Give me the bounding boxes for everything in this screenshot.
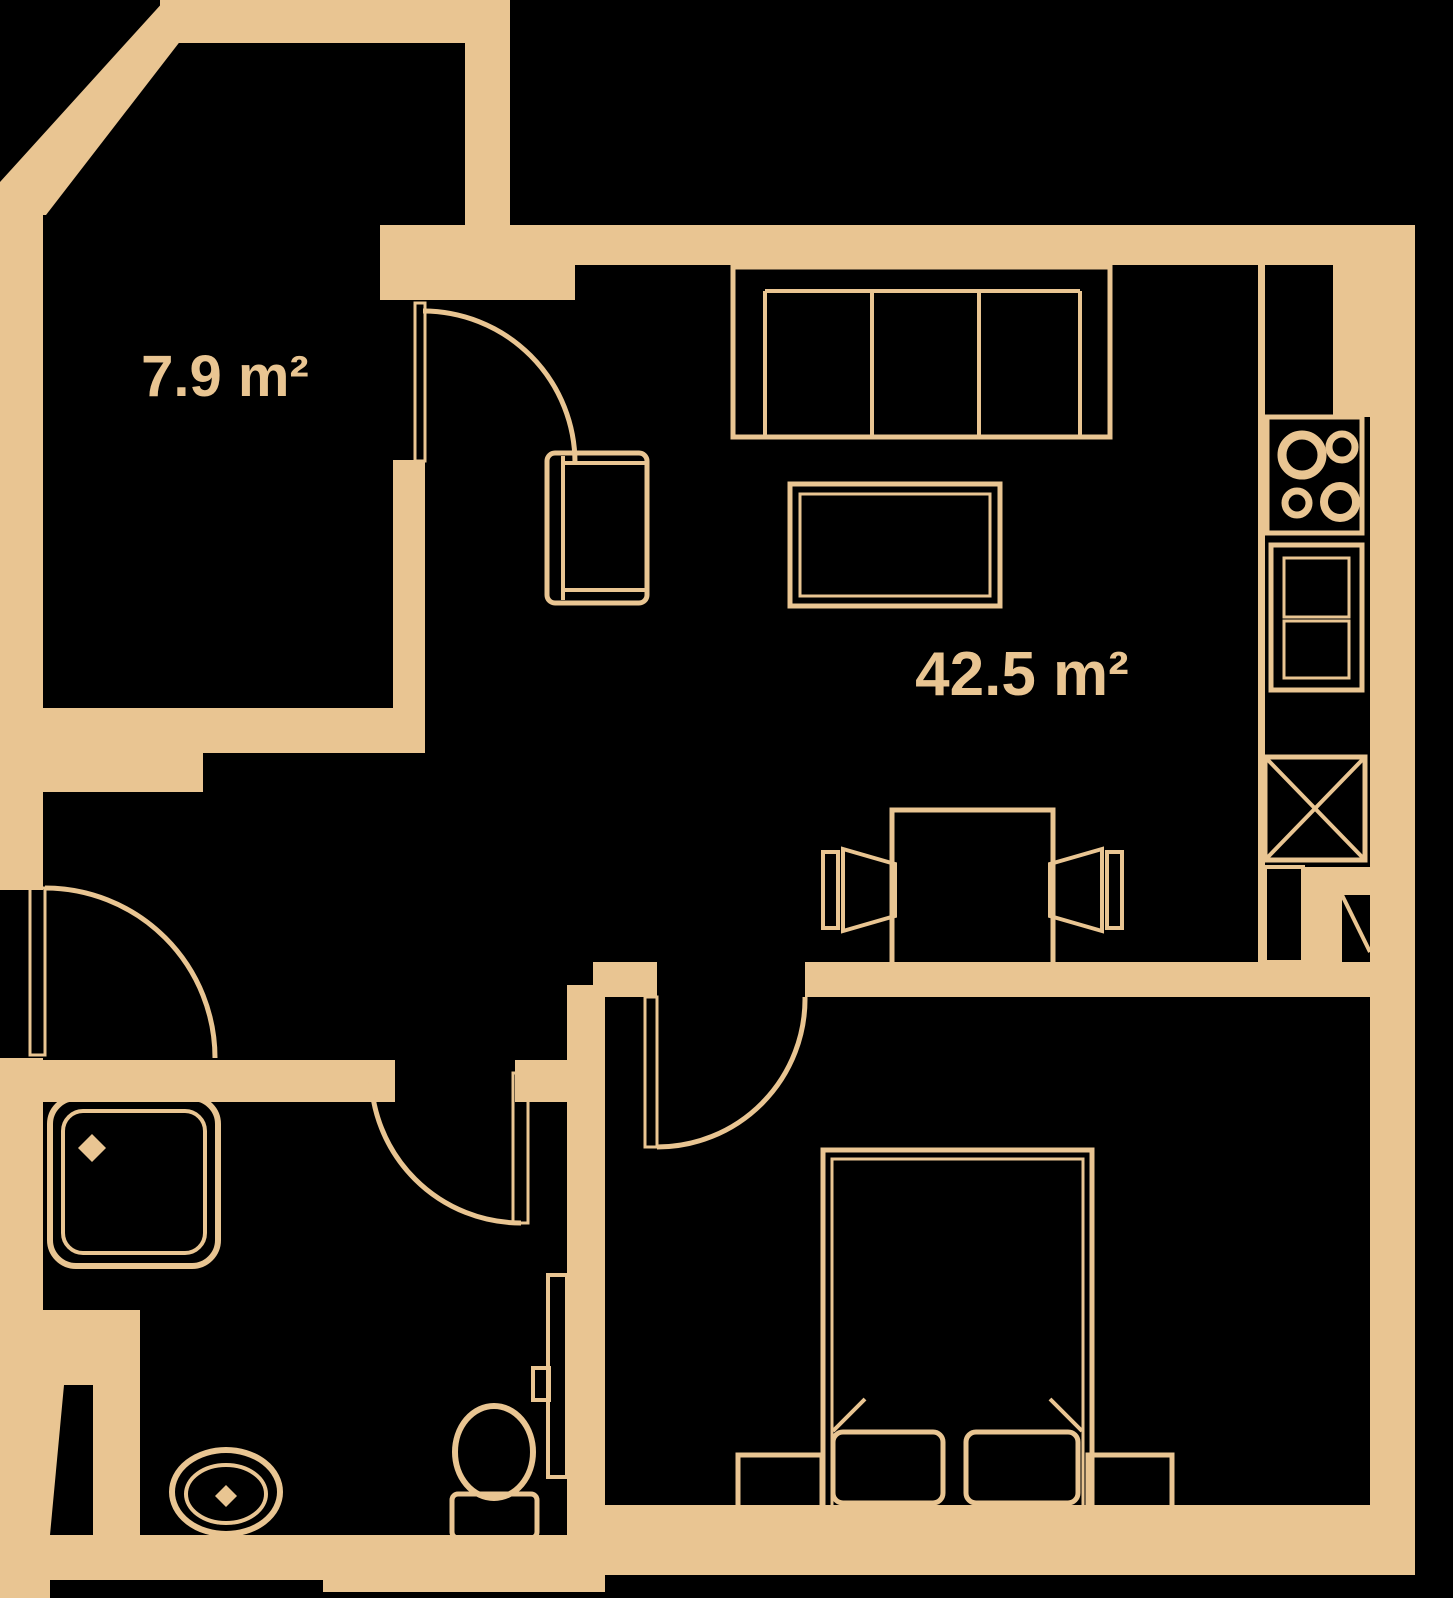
right-wall: [1370, 225, 1415, 1575]
pillow-left: [833, 1432, 943, 1503]
balcony-right-wall-upper: [465, 0, 510, 230]
bedroom-door-swing-arc: [657, 997, 805, 1147]
dining-chair-left: [823, 849, 895, 931]
chair-left-seat: [843, 849, 895, 931]
end-cabinet-corner: [1342, 867, 1370, 895]
burner-small-1: [1329, 434, 1355, 460]
stove: [1267, 417, 1362, 533]
shower-drain-diamond: [78, 1134, 106, 1162]
end-cabinet-diagonal: [1342, 895, 1370, 952]
sink-unit-crossed: [1265, 757, 1365, 860]
burner-large-2: [1324, 486, 1356, 518]
double-bed: [823, 1150, 1092, 1513]
floor-plan-drawing: 7.9 m² 42.5 m²: [0, 0, 1453, 1598]
bathroom-bottom-wall: [0, 1535, 605, 1580]
dining-table-outline: [892, 810, 1053, 965]
end-cabinet-outline: [1265, 867, 1303, 962]
balcony-area-label: 7.9 m²: [141, 344, 309, 409]
shower-inner: [63, 1111, 205, 1253]
kitchen-counter-back-fill: [1333, 265, 1370, 417]
fridge: [1271, 545, 1362, 690]
central-wall: [567, 985, 605, 1540]
bedroom-door-leaf: [645, 997, 657, 1147]
blanket-fold-right: [1050, 1399, 1082, 1431]
wall-junction-block: [380, 225, 575, 300]
nightstand-left: [738, 1455, 822, 1512]
end-cabinet-panel: [1303, 867, 1342, 962]
fridge-compartment-bottom: [1284, 621, 1349, 678]
bed-mattress-inner: [832, 1159, 1083, 1513]
floor-plan: 7.9 m² 42.5 m²: [0, 0, 1453, 1598]
blanket-fold-left: [833, 1399, 865, 1431]
bathroom-radiator: [533, 1275, 567, 1477]
entry-door-swing-arc: [45, 888, 215, 1058]
coffee-table-outline: [790, 484, 1000, 606]
living-area-label: 42.5 m²: [915, 640, 1129, 709]
burner-large-1: [1282, 435, 1322, 475]
walls: [0, 0, 1415, 1598]
shower-outline: [50, 1098, 218, 1266]
sofa: [733, 267, 1110, 437]
dining-table: [892, 810, 1053, 965]
basin-faucet-diamond: [215, 1485, 237, 1507]
bathroom-bottom-wall-step: [323, 1578, 605, 1592]
toilet: [452, 1406, 537, 1538]
balcony-door-swing-arc: [423, 311, 575, 463]
entry-door-leaf: [30, 888, 45, 1055]
left-wall-upper: [0, 195, 43, 890]
room-divider-wall-left: [593, 962, 657, 997]
balcony-top-wall: [160, 0, 510, 43]
coffee-table: [790, 484, 1000, 606]
balcony-bottom-wall-thick: [43, 708, 203, 792]
bottom-left-wall-stub: [0, 1535, 50, 1598]
counter-end-cabinet: [1265, 867, 1370, 962]
bed-outline: [823, 1150, 1092, 1513]
bedroom-door: [645, 997, 805, 1147]
nightstand-right: [1088, 1455, 1172, 1512]
kitchen-counter: [1265, 417, 1370, 962]
left-wall-lower: [0, 1058, 43, 1598]
balcony-door: [415, 303, 575, 463]
toilet-bowl: [455, 1406, 533, 1498]
chair-right-seat: [1050, 849, 1102, 931]
dining-chair-right: [1050, 849, 1122, 931]
entry-door: [30, 888, 215, 1058]
coffee-table-inner: [800, 494, 990, 596]
burner-small-2: [1285, 491, 1309, 515]
chair-right-backrest: [1107, 852, 1122, 928]
living-room-furniture: [547, 267, 1122, 965]
armchair: [547, 453, 647, 603]
shower-tray: [50, 1098, 218, 1266]
wash-basin: [172, 1450, 280, 1534]
pillow-right: [966, 1432, 1078, 1503]
living-top-wall: [465, 225, 1415, 265]
balcony-right-wall-lower: [393, 460, 425, 710]
chair-left-backrest: [823, 852, 838, 928]
bedroom-furniture: [738, 1150, 1172, 1513]
fridge-compartment-top: [1284, 558, 1349, 617]
balcony-door-leaf: [415, 303, 425, 461]
